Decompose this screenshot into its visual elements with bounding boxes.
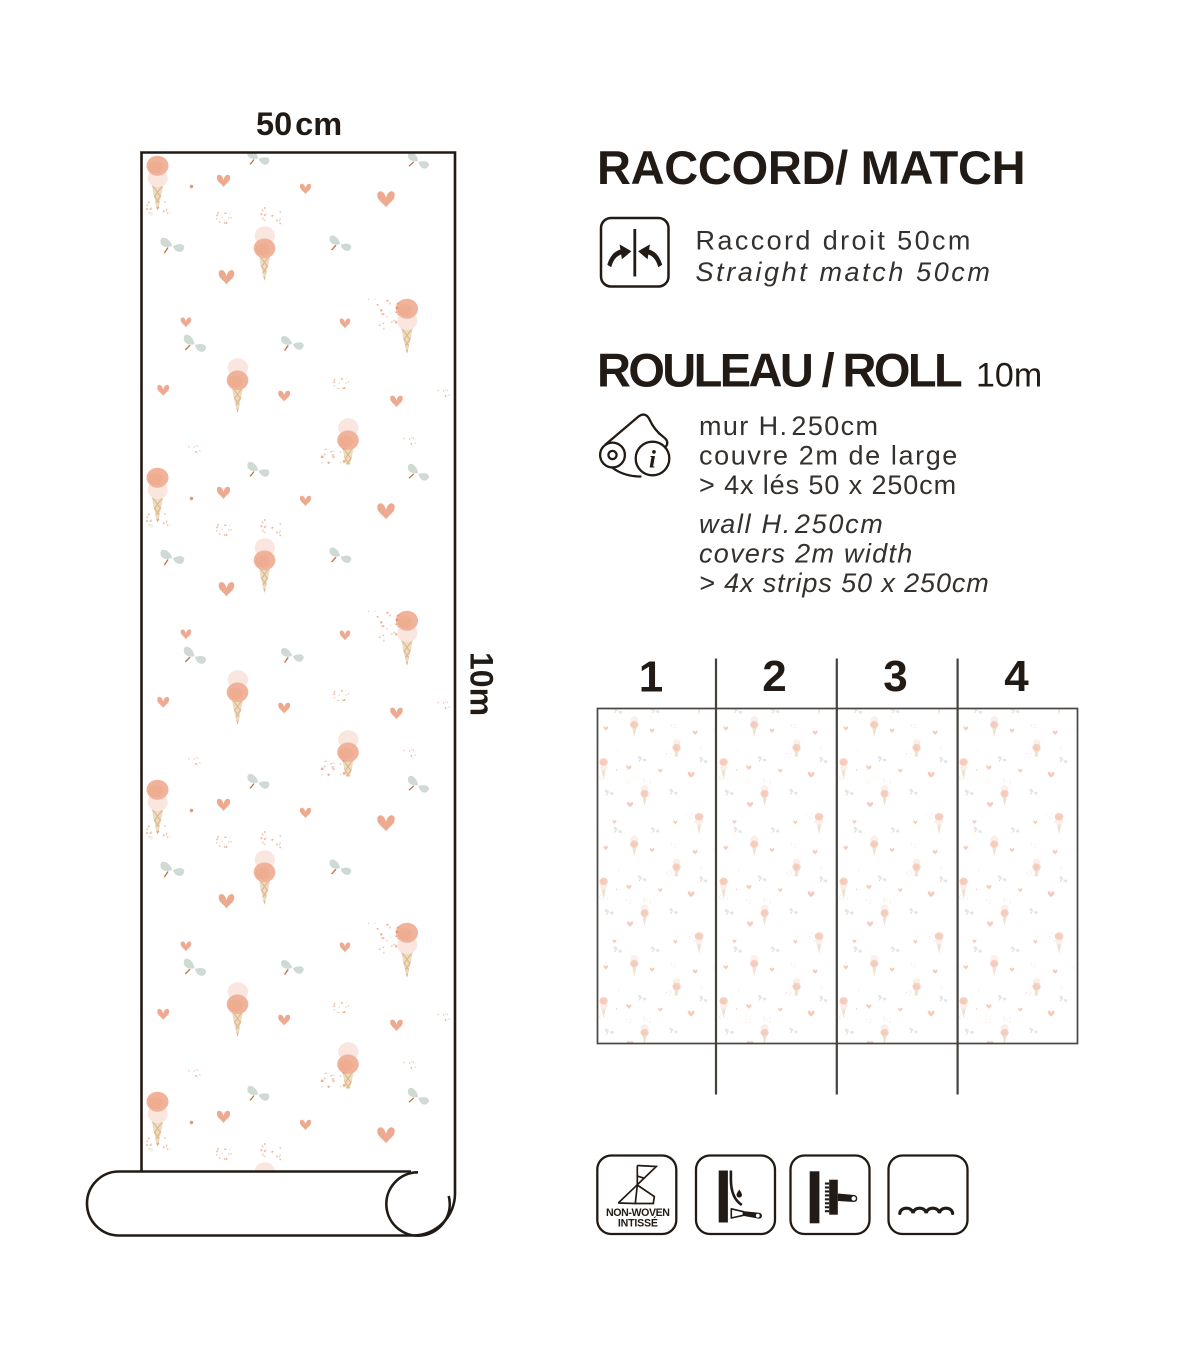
svg-text:10m: 10m bbox=[464, 652, 500, 716]
svg-text:Raccord droit 50cm: Raccord droit 50cm bbox=[696, 226, 973, 256]
svg-text:Straight match 50cm: Straight match 50cm bbox=[696, 257, 993, 287]
svg-text:2: 2 bbox=[762, 652, 786, 701]
svg-text:covers 2m width: covers 2m width bbox=[699, 539, 914, 569]
svg-text:INTISSÉ: INTISSÉ bbox=[618, 1217, 658, 1230]
svg-text:> 4x lés 50 x 250cm: > 4x lés 50 x 250cm bbox=[699, 470, 957, 500]
svg-text:couvre 2m de large: couvre 2m de large bbox=[699, 441, 959, 471]
svg-text:> 4x strips 50 x 250cm: > 4x strips 50 x 250cm bbox=[699, 568, 990, 598]
svg-text:wall H.250cm: wall H.250cm bbox=[699, 509, 884, 539]
svg-text:RACCORD/ MATCH: RACCORD/ MATCH bbox=[597, 141, 1025, 194]
svg-text:i: i bbox=[649, 447, 656, 474]
svg-text:50cm: 50cm bbox=[256, 106, 342, 142]
svg-text:4: 4 bbox=[1004, 652, 1029, 701]
svg-text:1: 1 bbox=[639, 653, 663, 702]
svg-text:3: 3 bbox=[883, 652, 907, 701]
